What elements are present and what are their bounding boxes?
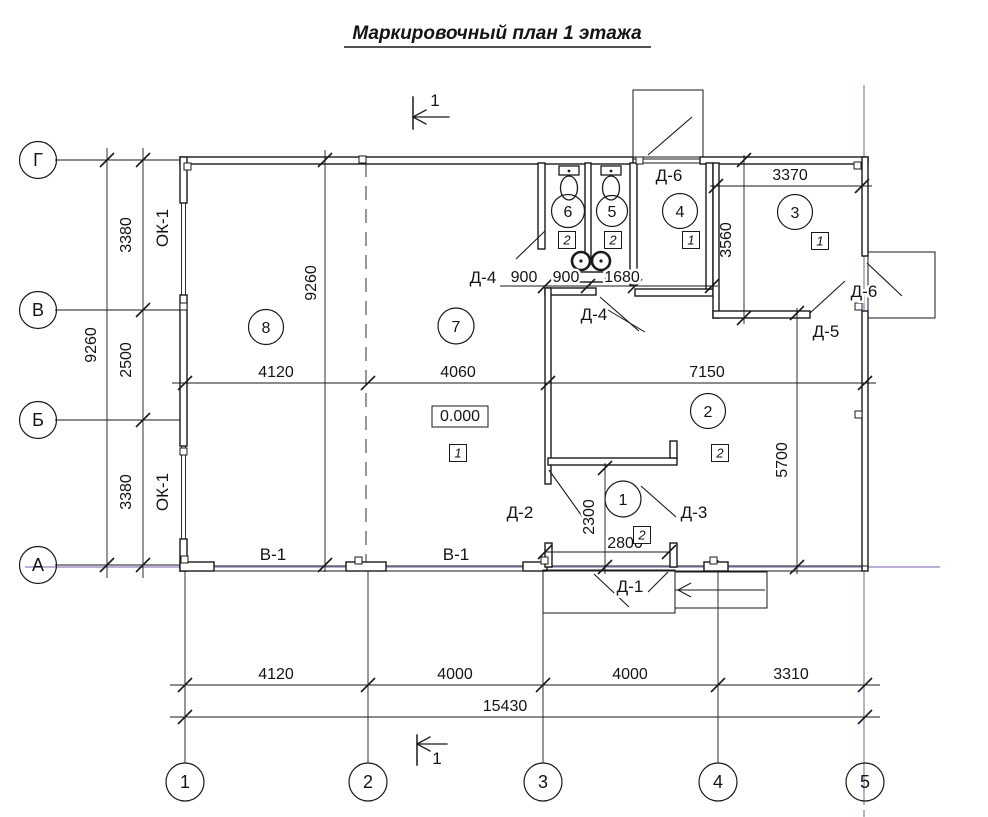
dimension-texts: 3380 2500 3380 9260 9260 4120 4060 7150 … xyxy=(83,167,809,715)
dim-9260-inner: 9260 xyxy=(303,265,320,301)
door1-leaf-b xyxy=(648,572,668,592)
floor-type-room7: 1 xyxy=(454,446,461,461)
gate-v1-b-label: В-1 xyxy=(443,545,469,564)
door3-leaf xyxy=(641,486,676,517)
room-2-number: 2 xyxy=(704,404,713,421)
room4-bottom-wall xyxy=(635,289,713,296)
top-porch xyxy=(633,90,703,157)
dim-7150: 7150 xyxy=(689,364,725,381)
dim-5700: 5700 xyxy=(774,442,791,478)
floor-type-room6: 2 xyxy=(562,233,571,248)
room-5-number: 5 xyxy=(608,204,617,221)
dim-15430: 15430 xyxy=(483,698,528,715)
elevation-value: 0.000 xyxy=(440,408,480,425)
axis-label-3: 3 xyxy=(538,772,548,792)
door1-label: Д-1 xyxy=(617,577,644,596)
door6-top-leaf xyxy=(648,117,692,155)
door6-top-label: Д-6 xyxy=(656,166,683,185)
dim-3370: 3370 xyxy=(772,167,808,184)
door4-right-label: Д-4 xyxy=(581,305,608,324)
floor-type-room1: 2 xyxy=(637,528,646,543)
floor-type-room3: 1 xyxy=(816,234,823,249)
dim-900-b: 900 xyxy=(553,269,580,286)
floor-type-room4: 1 xyxy=(687,233,694,248)
left-wall-seg2 xyxy=(180,295,187,446)
right-wall-seg1 xyxy=(862,157,868,256)
section-label-bottom: 1 xyxy=(432,749,441,768)
element-marks: Д-6 Д-6 Д-5 Д-4 Д-4 Д-2 Д-3 Д-1 ОК-1 ОК-… xyxy=(153,166,877,596)
door2-label: Д-2 xyxy=(507,503,534,522)
dim-2300: 2300 xyxy=(581,499,598,535)
dim-3560: 3560 xyxy=(718,222,735,258)
floor-type-room2: 2 xyxy=(715,446,724,461)
top-wall-right xyxy=(700,157,868,164)
room-8-number: 8 xyxy=(262,320,271,337)
dim-3380-bot: 3380 xyxy=(118,474,135,510)
axis-bubbles: Г В Б А 1 2 3 4 5 xyxy=(20,142,885,802)
door5-label: Д-5 xyxy=(813,322,840,341)
dim-4000-b: 4000 xyxy=(612,666,648,683)
right-porch xyxy=(868,252,935,318)
dim-1680: 1680 xyxy=(604,269,640,286)
axis-label-v: В xyxy=(32,300,44,320)
right-wall-seg2 xyxy=(862,311,868,571)
section-label-top: 1 xyxy=(430,91,439,110)
section-arrow-bottom xyxy=(417,737,430,744)
door4-left-label: Д-4 xyxy=(470,268,497,287)
room-1-number: 1 xyxy=(619,492,628,509)
window-ok1-top-label: ОК-1 xyxy=(153,209,172,247)
room4-right-wall xyxy=(706,163,713,289)
window-ok1-bot-label: ОК-1 xyxy=(153,473,172,511)
gate-v1-a-label: В-1 xyxy=(260,545,286,564)
steps-direction-arrow xyxy=(678,583,691,590)
axis-label-4: 4 xyxy=(713,772,723,792)
section-arrow-top xyxy=(413,110,426,117)
dimension-lines xyxy=(100,148,880,724)
axis-label-b: Б xyxy=(32,410,44,430)
axis-label-1: 1 xyxy=(180,772,190,792)
dim-900-a: 900 xyxy=(511,269,538,286)
drawing-sheet: Г В Б А 1 2 3 4 5 xyxy=(0,0,988,817)
room-4-number: 4 xyxy=(676,204,685,221)
drawing-title-group: Маркировочный план 1 этажа xyxy=(344,23,651,47)
dim-3380-top: 3380 xyxy=(118,217,135,253)
wc5-room4-wall xyxy=(630,163,637,285)
room-3-number: 3 xyxy=(791,205,800,222)
axis-label-a: А xyxy=(32,555,44,575)
dim-4120-mid: 4120 xyxy=(258,364,294,381)
floor-type-room5: 2 xyxy=(608,233,617,248)
room-7-number: 7 xyxy=(452,319,461,336)
door6-right-label: Д-6 xyxy=(851,282,878,301)
dim-4120-bot: 4120 xyxy=(258,666,294,683)
door2-leaf xyxy=(549,470,584,519)
axis-label-2: 2 xyxy=(363,772,373,792)
door5-leaf xyxy=(810,281,845,313)
door3-label: Д-3 xyxy=(681,503,708,522)
wc-partition-wall xyxy=(585,163,591,264)
axis-label-g: Г xyxy=(33,150,43,170)
dim-2500: 2500 xyxy=(118,342,135,378)
entrance-porch xyxy=(543,570,675,613)
dim-9260-left: 9260 xyxy=(83,327,100,363)
top-wall-left xyxy=(180,157,633,164)
dim-4000-a: 4000 xyxy=(437,666,473,683)
dim-4060: 4060 xyxy=(440,364,476,381)
axis-label-5: 5 xyxy=(860,772,870,792)
drawing-title: Маркировочный план 1 этажа xyxy=(352,23,642,44)
dim-3310: 3310 xyxy=(773,666,809,683)
room-6-number: 6 xyxy=(564,204,573,221)
floor-plan-drawing: Г В Б А 1 2 3 4 5 xyxy=(0,0,988,817)
